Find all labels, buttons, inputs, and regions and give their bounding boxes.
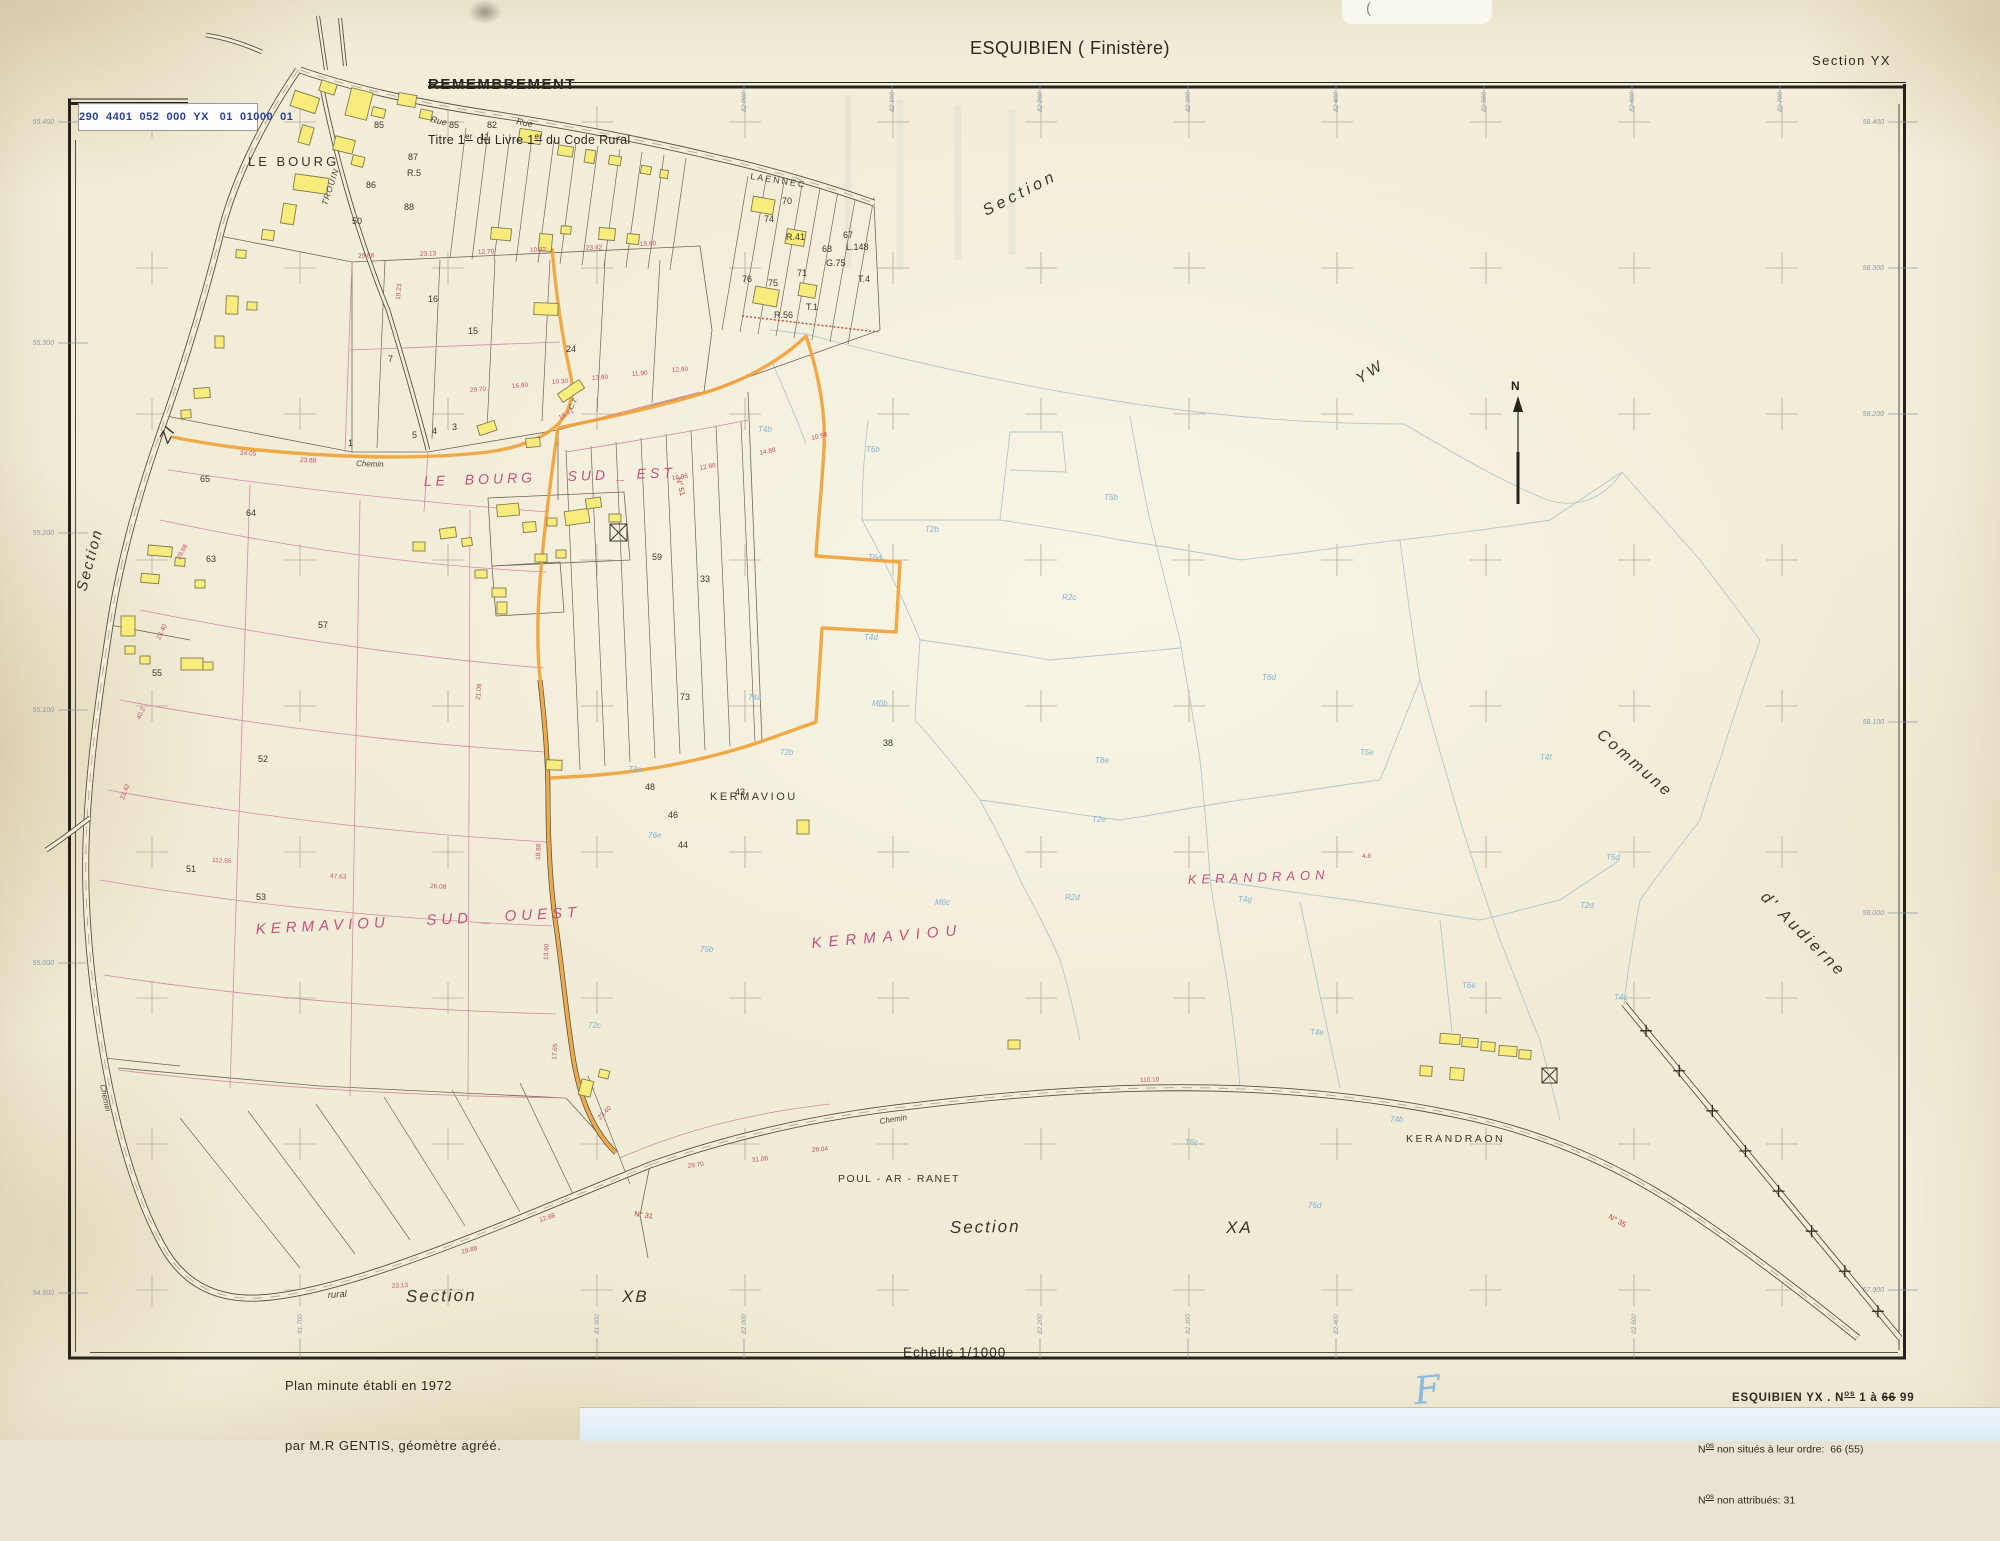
strip-line (452, 1090, 520, 1212)
grid-cross (1025, 1274, 1057, 1306)
grid-cross (1321, 982, 1353, 1014)
road-surface (650, 1088, 1858, 1338)
crossed-square-symbol (1542, 1068, 1557, 1083)
parcel-number: 76 (742, 274, 752, 284)
grid-cross (1173, 982, 1205, 1014)
parcel-number: R.5 (407, 168, 421, 178)
building (181, 410, 192, 419)
label-section-top: Section (980, 167, 1060, 219)
parcel-number: 64 (246, 508, 256, 518)
coord-label-left: 55.400 (33, 119, 55, 126)
coord-label-bottom: 82.300 (1185, 1314, 1192, 1334)
parcel-code: T6a (868, 553, 882, 562)
road-surface (1624, 1004, 1900, 1338)
road-centerline (650, 1088, 1858, 1338)
sheet-numbering-note: ESQUIBIEN YX . Nos 1 à 66 99 Nos non sit… (1698, 1354, 1978, 1541)
dimension-label: 28.04 (812, 1146, 829, 1154)
dimension-label: 23.40 (155, 623, 168, 641)
orange-boundary (538, 428, 616, 1153)
building (556, 550, 566, 558)
strip-line (180, 1118, 300, 1268)
building (181, 658, 203, 670)
grid-cross (1321, 690, 1353, 722)
building (526, 437, 541, 447)
building (585, 497, 601, 509)
strip-line (588, 1076, 630, 1184)
map-symbols-layer (610, 524, 1557, 1083)
faint-parcel-line (1622, 472, 1760, 1004)
dimension-label: 12.90 (672, 366, 689, 374)
dimension-label: 26.08 (430, 883, 447, 891)
road-number: N° 31 (634, 1209, 654, 1221)
faint-parcel-lines (770, 330, 1760, 1120)
building (236, 250, 247, 259)
dimension-label: 23.42 (119, 783, 131, 801)
building (640, 165, 651, 174)
grid-cross (136, 836, 168, 868)
building (215, 336, 224, 348)
parcel-number: 52 (258, 754, 268, 764)
grid-cross (1618, 1274, 1650, 1306)
coord-label-right: 58.300 (1863, 265, 1885, 272)
red-hatch-line (742, 316, 878, 332)
building (290, 90, 320, 113)
parcel-number: 87 (408, 152, 418, 162)
page-title: ESQUIBIEN ( Finistère) (820, 38, 1320, 59)
dimension-label: 16.90 (512, 382, 529, 390)
remembrement-line (230, 485, 250, 1088)
building (439, 527, 456, 539)
building (1420, 1066, 1433, 1077)
parcel-number: 24 (566, 344, 576, 354)
label-xb: XB (621, 1287, 649, 1306)
coord-label-top: 82.600 (1629, 92, 1636, 112)
building (461, 537, 472, 546)
building (609, 514, 621, 522)
coord-label-bottom: 82.200 (1037, 1314, 1044, 1334)
parcel-number: 38 (883, 738, 893, 748)
building (497, 602, 507, 614)
grid-cross (284, 544, 316, 576)
label-commune: Commune (1593, 726, 1676, 801)
building (397, 93, 417, 108)
grid-cross (432, 1128, 464, 1160)
faint-parcel-line (806, 334, 1404, 424)
building (345, 88, 373, 120)
building (475, 570, 487, 578)
grid-cross-layer (136, 106, 1798, 1306)
parcel-number: 50 (352, 216, 362, 226)
grid-cross (877, 252, 909, 284)
roads-layer (46, 16, 1900, 1338)
label-section-left: Section (73, 527, 106, 593)
map-labels-layer: LE BOURGLE BOURG SUD _ ESTKERMAVIOUKERMA… (73, 114, 1849, 1306)
label-xa: XA (1225, 1218, 1253, 1237)
grid-cross (1766, 544, 1798, 576)
grid-cross (1766, 690, 1798, 722)
strip-line (591, 446, 605, 766)
grid-cross (1321, 836, 1353, 868)
parcel-code: T6b (866, 445, 880, 454)
parcel-number: 48 (645, 782, 655, 792)
parcel-number: 3 (452, 422, 457, 432)
parcel-number: 75 (768, 278, 778, 288)
building (261, 229, 274, 241)
grid-cross (1618, 1128, 1650, 1160)
grid-cross (729, 544, 761, 576)
dimension-label: 14.88 (759, 447, 777, 457)
grid-cross (432, 836, 464, 868)
parcel-number: 59 (652, 552, 662, 562)
grid-cross (1173, 836, 1205, 868)
label-section-xa: Section (950, 1217, 1021, 1237)
grid-cross (1766, 982, 1798, 1014)
dimension-label: 31.08 (751, 1155, 768, 1164)
building (598, 1069, 610, 1079)
registry-stamp: 290 4401 052 000 YX 01 01000 01 (78, 103, 258, 131)
building (1008, 1040, 1020, 1049)
parcel-code: T2e (1092, 815, 1106, 824)
building (148, 545, 173, 557)
parcel-code: M6b (872, 699, 888, 708)
street-label-chemin-2: Chemin (879, 1113, 908, 1126)
faint-parcel-line (920, 640, 1180, 660)
parcel-code: 72c (588, 1021, 601, 1030)
north-label: N (1511, 379, 1520, 393)
sheet-note-line2: Nos non situés à leur ordre: 66 (55) (1698, 1438, 1978, 1458)
parcel-number: 71 (797, 268, 807, 278)
dimension-label: 29.88 (358, 252, 375, 260)
faint-parcel-line (1240, 472, 1622, 560)
code-rural-subtitle: Titre 1er du Livre 1er du Code Rural (428, 132, 630, 147)
parcel-number: 5 (412, 430, 417, 440)
grid-cross (1766, 836, 1798, 868)
building (599, 227, 616, 240)
parcel-number: 16 (428, 294, 438, 304)
grid-cross (1470, 252, 1502, 284)
parcel-code: 75b (700, 945, 714, 954)
north-arrow: N (1511, 379, 1523, 504)
parcel-number: 1 (348, 438, 353, 448)
coord-label-right: 57.900 (1863, 1287, 1885, 1294)
grid-cross (1618, 252, 1650, 284)
grid-cross (1766, 252, 1798, 284)
parcel-code: T6d (1262, 673, 1276, 682)
dimension-label: 13.90 (543, 943, 551, 960)
building (561, 226, 572, 235)
dimension-label: 110.10 (1140, 1076, 1160, 1084)
parcel-code: T2b (925, 525, 939, 534)
label-section-xb: Section (406, 1286, 477, 1306)
sheet-note-line3: Nos non attribués: 31 (1698, 1489, 1978, 1509)
grid-cross (284, 1128, 316, 1160)
parcel-code: R2c (1062, 593, 1076, 602)
pen-mark: ( (1366, 0, 1371, 17)
parcel-number: 51 (186, 864, 196, 874)
parcel-code: T5d (1606, 853, 1620, 862)
grid-cross (1025, 836, 1057, 868)
grid-cross (1470, 1274, 1502, 1306)
dimension-label: 23.13 (420, 250, 437, 258)
dimension-label: 24.05 (240, 450, 257, 458)
dimension-label: 13.90 (592, 374, 609, 382)
building (753, 286, 780, 307)
dimension-label: 112.55 (212, 857, 232, 865)
parcel-line (166, 416, 352, 452)
parcel-code: 73a (628, 765, 642, 774)
parcel-line (748, 392, 762, 742)
parcel-number: T.1 (806, 302, 818, 312)
parcel-number: 55 (152, 668, 162, 678)
coord-label-top: 82.000 (741, 92, 748, 112)
grid-cross (877, 1274, 909, 1306)
parcel-number: 68 (822, 244, 832, 254)
grid-cross (581, 252, 613, 284)
parcel-number: 88 (404, 202, 414, 212)
street-label-rural: rural (327, 1289, 348, 1301)
building (226, 296, 239, 314)
coord-label-bottom: 81.900 (594, 1314, 601, 1334)
grid-cross (284, 398, 316, 430)
building (491, 227, 512, 241)
bleedthrough-ghost-marks (848, 95, 1012, 270)
dimension-label: 23.88 (300, 457, 317, 465)
dimension-label: 11.90 (632, 370, 649, 378)
coord-label-bottom: 81.700 (297, 1314, 304, 1334)
map-scale: Echelle 1/1000 (903, 1345, 1006, 1360)
grid-cross (1618, 398, 1650, 430)
parcel-number: 85 (374, 120, 384, 130)
crossed-square-symbol (610, 524, 627, 541)
label-yw: YW (1353, 357, 1388, 388)
remembrement-line (104, 975, 556, 1014)
building (1499, 1045, 1518, 1056)
grid-cross (877, 1128, 909, 1160)
grid-cross (1173, 398, 1205, 430)
dimension-label: 17.65 (551, 1043, 559, 1060)
building (371, 107, 386, 119)
orange-boundary-layer (172, 248, 900, 1153)
road-number: N° 35 (1607, 1212, 1628, 1229)
building (1481, 1042, 1496, 1052)
faint-parcel-line (1400, 540, 1560, 1120)
grid-cross (284, 690, 316, 722)
scanned-cadastral-sheet: N LE BOURGLE BOURG SUD _ ESTKERMAVIOUKER… (0, 0, 2000, 1440)
strip-line (616, 442, 630, 762)
grid-cross (1470, 398, 1502, 430)
dimension-label: 4.8 (1362, 853, 1371, 860)
parcel-number: 43 (735, 787, 745, 797)
building (413, 542, 425, 551)
building (547, 518, 557, 526)
road-casing (650, 1088, 1858, 1338)
building (535, 554, 547, 562)
dimension-label: 10.30 (552, 378, 569, 386)
parcel-code: 72b (780, 748, 794, 757)
parcel-code: T4b (758, 425, 772, 434)
dimension-label: 29.88 (461, 1245, 479, 1256)
parcel-number: 65 (200, 474, 210, 484)
parcel-number: 44 (678, 840, 688, 850)
strip-line (652, 260, 660, 403)
coord-label-bottom: 82.600 (1631, 1314, 1638, 1334)
strip-line (384, 1097, 465, 1226)
grid-cross (1766, 1128, 1798, 1160)
parcel-number: 73 (680, 692, 690, 702)
grid-cross (284, 252, 316, 284)
building (534, 303, 558, 316)
faint-parcel-line (1000, 432, 1066, 520)
coord-label-right: 58.000 (1863, 910, 1885, 917)
coord-label-right: 58.100 (1863, 719, 1885, 726)
label-kermaviou-black: KERMAVIOU (710, 791, 798, 803)
grid-cross (581, 690, 613, 722)
parcel-code: T4d (864, 633, 878, 642)
building (1462, 1037, 1479, 1047)
coord-label-left: 55.000 (33, 960, 55, 967)
dimension-label: 12.88 (538, 1212, 556, 1224)
remembrement-line (345, 262, 352, 452)
remembrement-line (620, 1104, 830, 1158)
coord-label-left: 55.100 (33, 707, 55, 714)
coord-label-top: 82.700 (1777, 92, 1784, 112)
coord-label-top: 82.500 (1481, 92, 1488, 112)
coord-label-bottom: 82.400 (1333, 1314, 1340, 1334)
grid-cross (729, 398, 761, 430)
coordinate-ticks-layer: 55.40055.30055.20055.10055.00054.90058.4… (33, 86, 1918, 1358)
road-surface (318, 16, 326, 70)
parcel-code: T8e (1095, 756, 1109, 765)
faint-parcel-line (1404, 424, 1622, 503)
parcel-number: 74 (764, 214, 774, 224)
building (497, 503, 520, 517)
building (281, 203, 297, 225)
coord-label-top: 82.100 (889, 92, 896, 112)
building (351, 155, 365, 168)
coord-label-left: 54.900 (33, 1290, 55, 1297)
building (627, 233, 640, 244)
parcel-code: T4e (1310, 1028, 1324, 1037)
grid-cross (1470, 690, 1502, 722)
parcel-number: L.148 (846, 242, 869, 252)
building (546, 760, 562, 771)
label-kerandraon-black: KERANDRAON (1406, 1133, 1505, 1145)
grid-cross (1321, 398, 1353, 430)
building (141, 573, 160, 584)
coord-label-right: 58.400 (1863, 119, 1885, 126)
dimension-label: 21.08 (475, 683, 483, 700)
faint-parcel-line (1130, 416, 1240, 1088)
parcel-code: T4f (1540, 753, 1552, 762)
building (798, 283, 817, 299)
grid-cross (1321, 544, 1353, 576)
parcel-number: 67 (843, 230, 853, 240)
coord-label-left: 55.200 (33, 530, 55, 537)
grid-cross (1025, 252, 1057, 284)
building (194, 387, 211, 398)
strip-line (520, 1083, 575, 1198)
grid-cross (1766, 398, 1798, 430)
dimension-label: 23.13 (392, 1282, 409, 1290)
dimension-label: 29.88 (176, 543, 190, 561)
faint-parcel-line (862, 520, 1240, 560)
plan-author-line: par M.R GENTIS, géomètre agréé. (285, 1436, 501, 1456)
parcel-number: T.4 (858, 274, 870, 284)
building (492, 588, 506, 597)
building (140, 656, 150, 664)
dimension-label: 40.2 (135, 706, 147, 721)
label-kermaviou-pink: KERMAVIOU (811, 922, 964, 952)
label-kermaviou-sud-ouest: KERMAVIOU SUD _ OUEST (255, 904, 581, 938)
grid-cross (1173, 252, 1205, 284)
sheet-range-line: ESQUIBIEN YX . Nos 1 à 66 99 (1698, 1386, 1978, 1406)
dimension-label: 29.70 (470, 386, 487, 394)
building (1450, 1068, 1465, 1081)
grid-cross (1025, 398, 1057, 430)
coord-label-left: 55.300 (33, 340, 55, 347)
grid-cross (432, 544, 464, 576)
parcel-code: T4c (1614, 993, 1627, 1002)
building (1519, 1050, 1532, 1060)
grid-cross (432, 690, 464, 722)
faint-parcel-line (770, 330, 806, 334)
strip-line (691, 430, 705, 750)
parcel-number: 70 (782, 196, 792, 206)
parcel-number: 4 (432, 426, 437, 436)
coord-label-top: 82.200 (1037, 92, 1044, 112)
strip-line (641, 438, 655, 758)
grid-cross (1470, 836, 1502, 868)
grid-cross (729, 982, 761, 1014)
grid-cross (581, 544, 613, 576)
parcel-code: 74b (1390, 1115, 1404, 1124)
grid-cross (1025, 544, 1057, 576)
strip-line (432, 260, 440, 439)
dimension-label: 18.88 (535, 843, 543, 860)
grid-cross (136, 982, 168, 1014)
parcel-code: T5b (1104, 493, 1118, 502)
parcel-code: 74a (748, 693, 762, 702)
label-le-bourg: LE BOURG (248, 154, 339, 169)
parcel-number: 7 (388, 354, 393, 364)
grid-cross (1025, 690, 1057, 722)
grid-cross (729, 836, 761, 868)
building (195, 580, 205, 588)
strip-line (542, 260, 550, 421)
plan-date-line: Plan minute établi en 1972 (285, 1376, 501, 1396)
remembrement-lines (100, 262, 878, 1158)
parcel-code: T6c (1185, 1138, 1198, 1147)
strip-line (566, 450, 580, 770)
remembrement-heading: REMEMBREMENT Titre 1er du Livre 1er du C… (428, 40, 630, 183)
section-code: Section YX (1812, 53, 1891, 68)
parcel-code: T6e (1462, 981, 1476, 990)
coord-label-top: 82.300 (1185, 92, 1192, 112)
grid-cross (136, 1128, 168, 1160)
cadastral-map-canvas: N LE BOURGLE BOURG SUD _ ESTKERMAVIOUKER… (0, 0, 2000, 1440)
grid-cross (1618, 690, 1650, 722)
faint-parcel-line (772, 362, 806, 444)
dimension-label: 15.60 (640, 240, 657, 248)
remembrement-line (566, 420, 748, 452)
street-label-chemin-1: Chemin (356, 459, 384, 469)
grid-cross (1173, 1274, 1205, 1306)
grid-cross (1618, 544, 1650, 576)
grid-cross (284, 836, 316, 868)
grid-cross (1618, 836, 1650, 868)
faint-parcel-line (980, 680, 1420, 820)
remembrement-line (108, 790, 548, 842)
